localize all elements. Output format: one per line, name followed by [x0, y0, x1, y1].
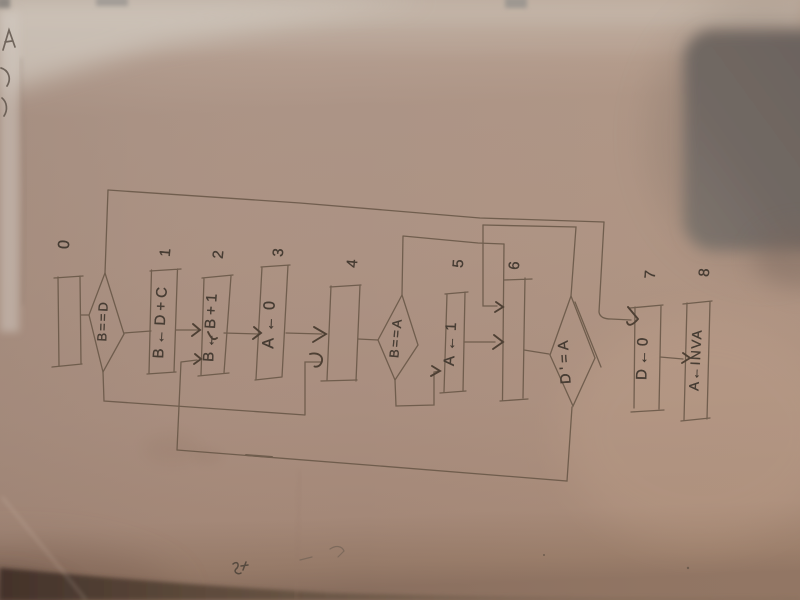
- svg-text:D←0: D←0: [633, 333, 652, 380]
- svg-text:D'=A: D'=A: [555, 336, 574, 384]
- svg-text:A←0: A←0: [260, 295, 279, 349]
- svg-text:7: 7: [642, 270, 660, 280]
- svg-text:8: 8: [696, 268, 714, 278]
- svg-text:A←1: A←1: [441, 317, 461, 366]
- svg-text:6: 6: [506, 261, 524, 271]
- svg-text:4: 4: [344, 259, 362, 269]
- svg-text:5: 5: [450, 259, 468, 269]
- svg-text:B==D: B==D: [94, 300, 110, 342]
- svg-text:1: 1: [157, 248, 175, 258]
- svg-text:0: 0: [56, 239, 74, 249]
- svg-text:2: 2: [210, 250, 228, 260]
- svg-text:3: 3: [270, 248, 288, 258]
